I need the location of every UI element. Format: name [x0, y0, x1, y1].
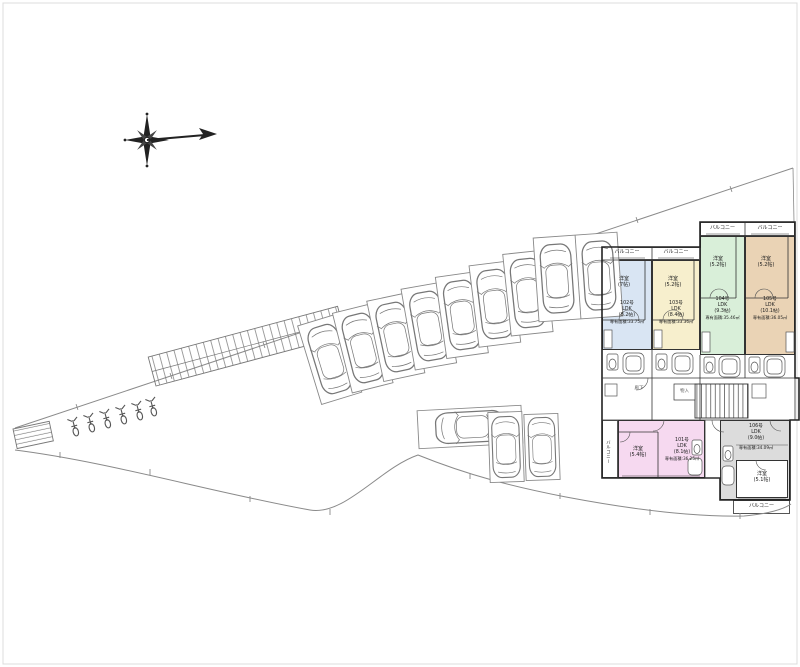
storage-label: 物入 [674, 389, 695, 395]
bicycle-rack [148, 306, 345, 386]
storage-room [674, 384, 695, 400]
bicycles [67, 397, 159, 437]
balcony-101 [602, 420, 618, 478]
compass-north-arrow [124, 113, 217, 168]
unit-102-area [602, 260, 652, 350]
unit-103-area [652, 260, 700, 350]
parking-row [298, 232, 623, 404]
staircase [695, 384, 748, 418]
unit-101-area [618, 420, 705, 478]
balcony-106 [733, 500, 790, 514]
unit-105-area [745, 236, 795, 355]
site-plan-drawing: バルコニー バルコニー バルコニー バルコニー バルコニー バルコニー 洋室(7… [0, 0, 800, 667]
unit-104-area [700, 236, 745, 355]
unit-106-bedroom [736, 460, 788, 498]
sign-hatch [13, 421, 53, 448]
corridor-label: 廊下 [628, 386, 650, 392]
balcony-102-103 [602, 247, 700, 260]
arrow-head [199, 128, 217, 140]
balcony-104-105 [700, 222, 795, 236]
parking-bottom [417, 405, 560, 482]
